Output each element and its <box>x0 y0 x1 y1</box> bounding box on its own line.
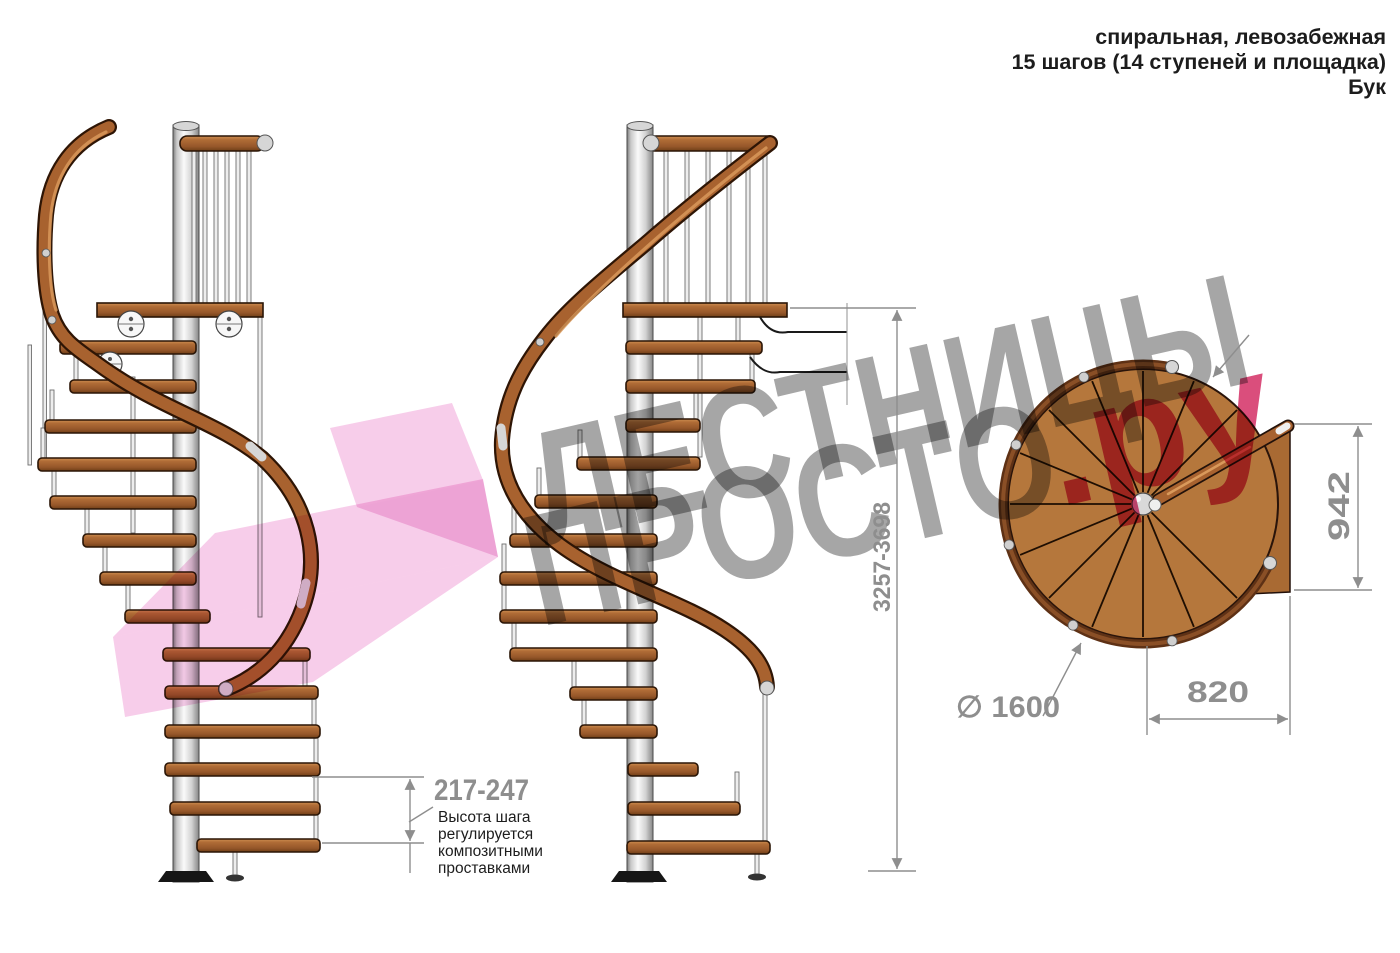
pole-base-flange <box>158 871 214 882</box>
side-view-left <box>28 122 320 883</box>
note-line-2: регулируется <box>438 826 533 843</box>
dim-step-height-label: 217-247 <box>434 774 529 807</box>
dimension-landing-depth: 942 <box>1294 424 1372 590</box>
pole-base-flange <box>611 871 667 882</box>
note-line-4: проставками <box>438 860 530 877</box>
railing-handrail-bar <box>180 136 264 151</box>
landing-platform <box>623 303 787 317</box>
drawing-canvas: ЛЕСТНИЦЫ ПРОСТО .ру 217-247 Высота шага … <box>0 0 1400 953</box>
header-spec: спиральная, левозабежная 15 шагов (14 ст… <box>1012 25 1387 99</box>
technical-drawing-page: ЛЕСТНИЦЫ ПРОСТО .ру 217-247 Высота шага … <box>0 0 1400 953</box>
note-line-1: Высота шага <box>438 809 531 826</box>
note-line-3: композитными <box>438 843 543 860</box>
dim-landing-depth-label: 942 <box>1323 471 1356 541</box>
spec-type: спиральная, левозабежная <box>1095 25 1386 49</box>
spec-material: Бук <box>1348 75 1386 99</box>
spec-steps: 15 шагов (14 ступеней и площадка) <box>1012 50 1386 74</box>
dim-diameter-label: ∅ 1600 <box>956 691 1060 724</box>
dim-landing-width-label: 820 <box>1187 676 1249 709</box>
watermark-logo <box>113 403 498 717</box>
note-step-height: Высота шага регулируется композитными пр… <box>438 809 543 877</box>
dimension-diameter-leader: ∅ 1600 <box>956 643 1081 724</box>
landing-railing <box>180 135 273 305</box>
dim-total-height-label: 3257-3698 <box>869 502 896 612</box>
